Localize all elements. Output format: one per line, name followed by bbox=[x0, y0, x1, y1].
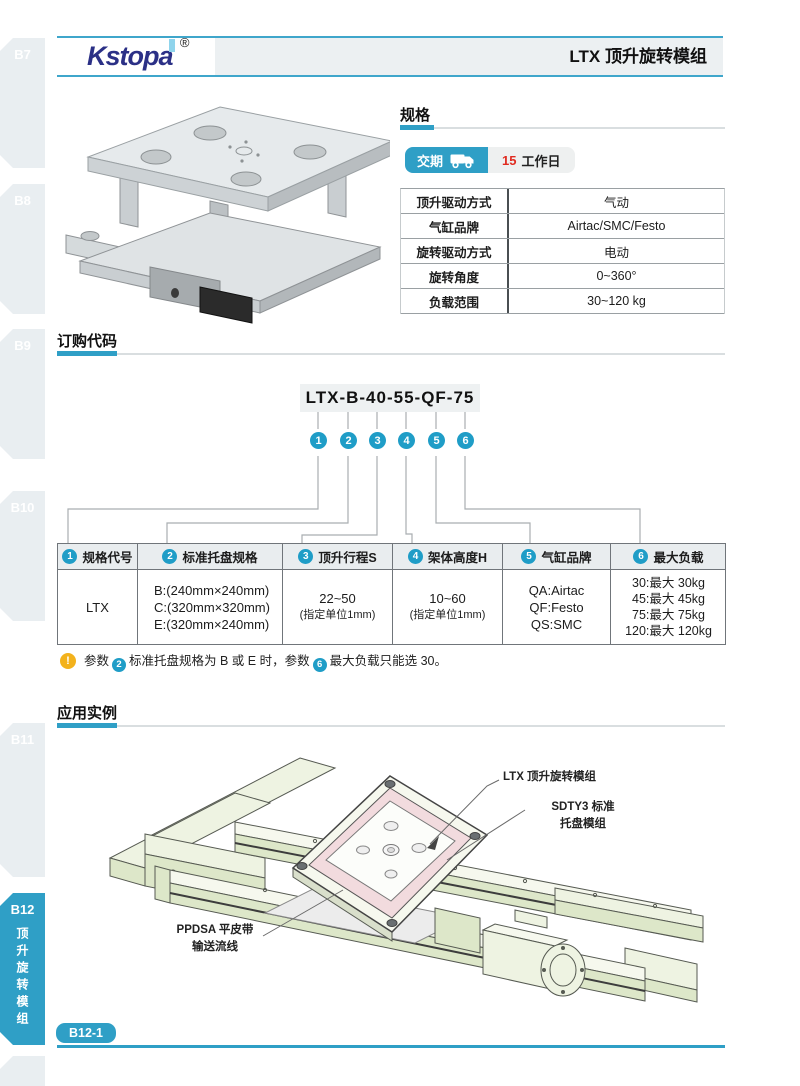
sidebar-tab-partial bbox=[0, 1056, 45, 1086]
cell-stroke: 22~50 (指定单位1mm) bbox=[283, 570, 393, 644]
spec-label: 旋转驱动方式 bbox=[401, 239, 509, 263]
col-label: 气缸品牌 bbox=[541, 547, 591, 566]
note-text: 参数2标准托盘规格为 B 或 E 时，参数6最大负载只能选 30。 bbox=[84, 650, 447, 672]
pallet-option: E:(320mm×240mm) bbox=[154, 616, 269, 633]
cell-pallet-options: B:(240mm×240mm) C:(320mm×320mm) E:(320mm… bbox=[138, 570, 283, 644]
load-option: 45:最大 45kg bbox=[632, 591, 705, 607]
sidebar-tab-label: B8 bbox=[14, 193, 31, 208]
cylinder-option: QF:Festo bbox=[529, 599, 583, 616]
header-bar: Kstopa ® LTX 顶升旋转模组 bbox=[57, 36, 723, 77]
spec-row: 顶升驱动方式 气动 bbox=[401, 189, 724, 214]
brand-logo-text: Kstopa bbox=[87, 41, 173, 71]
note-part1: 参数 bbox=[84, 654, 109, 668]
label-pallet-line1: SDTY3 标准 bbox=[528, 799, 638, 816]
truck-icon bbox=[450, 152, 476, 169]
spec-label: 负载范围 bbox=[401, 289, 509, 313]
ordering-table: 1规格代号 2标准托盘规格 3顶升行程S 4架体高度H 5气缸品牌 6最大负载 … bbox=[57, 543, 726, 645]
cell-cylinder-options: QA:Airtac QF:Festo QS:SMC bbox=[503, 570, 611, 644]
col-num-circle: 1 bbox=[62, 549, 77, 564]
ordering-col-header: 3顶升行程S bbox=[283, 544, 393, 569]
delivery-label: 交期 bbox=[417, 151, 443, 170]
delivery-badge: 交期 15 工作日 bbox=[405, 147, 575, 173]
pallet-option: C:(320mm×320mm) bbox=[154, 599, 270, 616]
sidebar-tab-b8[interactable]: B8 bbox=[0, 184, 45, 314]
note-part3: 最大负载只能选 30。 bbox=[330, 654, 447, 668]
spec-value: 30~120 kg bbox=[509, 289, 724, 313]
ordering-section-title: 订购代码 bbox=[57, 330, 117, 351]
stroke-unit-note: (指定单位1mm) bbox=[300, 607, 376, 624]
cell-frame-height: 10~60 (指定单位1mm) bbox=[393, 570, 503, 644]
ordering-table-header: 1规格代号 2标准托盘规格 3顶升行程S 4架体高度H 5气缸品牌 6最大负载 bbox=[58, 544, 725, 570]
label-pallet-module: SDTY3 标准 托盘模组 bbox=[528, 799, 638, 833]
sidebar-tab-b12-active[interactable]: B12 顶升旋转模组 bbox=[0, 893, 45, 1045]
col-label: 顶升行程S bbox=[318, 547, 376, 566]
col-label: 标准托盘规格 bbox=[182, 547, 257, 566]
callout-5: 5 bbox=[428, 432, 445, 449]
warning-icon: ! bbox=[60, 653, 76, 669]
page-number-badge[interactable]: B12-1 bbox=[56, 1023, 116, 1043]
specs-section-rule-accent bbox=[400, 125, 434, 130]
application-section-rule bbox=[57, 725, 725, 727]
specs-section-title: 规格 bbox=[400, 104, 430, 125]
spec-value: Airtac/SMC/Festo bbox=[509, 214, 724, 238]
spec-value: 气动 bbox=[509, 189, 724, 213]
sidebar-tab-label: B10 bbox=[11, 500, 35, 515]
height-range: 10~60 bbox=[429, 590, 466, 607]
height-unit-note: (指定单位1mm) bbox=[410, 607, 486, 624]
col-num-circle: 2 bbox=[162, 549, 177, 564]
ordering-note: ! 参数2标准托盘规格为 B 或 E 时，参数6最大负载只能选 30。 bbox=[60, 650, 447, 672]
spec-row: 旋转驱动方式 电动 bbox=[401, 239, 724, 264]
application-section-title: 应用实例 bbox=[57, 702, 117, 723]
ordering-section-rule bbox=[57, 353, 725, 355]
sidebar-tab-label: B7 bbox=[14, 47, 31, 62]
spec-table: 顶升驱动方式 气动 气缸品牌 Airtac/SMC/Festo 旋转驱动方式 电… bbox=[400, 188, 725, 314]
cylinder-option: QA:Airtac bbox=[529, 582, 585, 599]
sidebar-tab-b10[interactable]: B10 bbox=[0, 491, 45, 621]
ordering-col-header: 4架体高度H bbox=[393, 544, 503, 569]
label-belt-line2: 输送流线 bbox=[160, 939, 270, 956]
sidebar-tab-vertical-label: 顶升旋转模组 bbox=[14, 927, 31, 1029]
col-num-circle: 6 bbox=[633, 549, 648, 564]
spec-label: 顶升驱动方式 bbox=[401, 189, 509, 213]
ordering-table-row: LTX B:(240mm×240mm) C:(320mm×320mm) E:(3… bbox=[58, 570, 725, 644]
col-num-circle: 4 bbox=[408, 549, 423, 564]
spec-label: 旋转角度 bbox=[401, 264, 509, 288]
ordering-col-header: 5气缸品牌 bbox=[503, 544, 611, 569]
brand-logo: Kstopa ® bbox=[87, 41, 173, 72]
pallet-option: B:(240mm×240mm) bbox=[154, 582, 269, 599]
callout-6: 6 bbox=[457, 432, 474, 449]
cylinder-option: QS:SMC bbox=[531, 616, 582, 633]
stroke-range: 22~50 bbox=[319, 590, 356, 607]
col-num-circle: 5 bbox=[521, 549, 536, 564]
load-option: 120:最大 120kg bbox=[625, 623, 712, 639]
sidebar-tab-b7[interactable]: B7 bbox=[0, 38, 45, 168]
col-label: 架体高度H bbox=[428, 547, 487, 566]
col-num-circle: 3 bbox=[298, 549, 313, 564]
application-section-rule-accent bbox=[57, 723, 117, 728]
footer-rule bbox=[57, 1045, 725, 1048]
cell-load-options: 30:最大 30kg 45:最大 45kg 75:最大 75kg 120:最大 … bbox=[611, 570, 726, 644]
page-title: LTX 顶升旋转模组 bbox=[569, 38, 707, 75]
note-circle-2: 2 bbox=[112, 658, 126, 672]
load-option: 30:最大 30kg bbox=[632, 575, 705, 591]
col-label: 规格代号 bbox=[82, 547, 132, 566]
callout-2: 2 bbox=[340, 432, 357, 449]
spec-value: 0~360° bbox=[509, 264, 724, 288]
delivery-days: 15 bbox=[502, 153, 516, 168]
order-code-connector-lines bbox=[57, 412, 725, 543]
spec-value: 电动 bbox=[509, 239, 724, 263]
sidebar-tab-label: B11 bbox=[11, 732, 34, 747]
label-belt-line: PPDSA 平皮带 输送流线 bbox=[160, 922, 270, 956]
spec-row: 负载范围 30~120 kg bbox=[401, 289, 724, 314]
note-circle-6: 6 bbox=[313, 658, 327, 672]
catalog-page: B7 B8 B9 B10 B11 B12 顶升旋转模组 Kstopa ® LTX… bbox=[0, 0, 800, 1086]
cell-spec-code: LTX bbox=[58, 570, 138, 644]
spec-row: 气缸品牌 Airtac/SMC/Festo bbox=[401, 214, 724, 239]
sidebar-tab-b11[interactable]: B11 bbox=[0, 723, 45, 877]
ordering-col-header: 6最大负载 bbox=[611, 544, 726, 569]
spec-label: 气缸品牌 bbox=[401, 214, 509, 238]
application-drawing bbox=[85, 738, 705, 1020]
col-label: 最大负载 bbox=[653, 547, 703, 566]
callout-3: 3 bbox=[369, 432, 386, 449]
spec-row: 旋转角度 0~360° bbox=[401, 264, 724, 289]
registered-trademark-icon: ® bbox=[180, 35, 189, 50]
ordering-col-header: 2标准托盘规格 bbox=[138, 544, 283, 569]
sidebar-tab-label: B12 bbox=[11, 902, 35, 917]
specs-section-rule bbox=[400, 127, 725, 129]
note-part2: 标准托盘规格为 B 或 E 时，参数 bbox=[129, 654, 310, 668]
sidebar-tab-label: B9 bbox=[14, 338, 31, 353]
sidebar-tab-b9[interactable]: B9 bbox=[0, 329, 45, 459]
delivery-unit: 工作日 bbox=[521, 151, 560, 170]
logo-accent-mark bbox=[169, 39, 175, 52]
delivery-badge-left: 交期 bbox=[405, 147, 488, 173]
load-option: 75:最大 75kg bbox=[632, 607, 705, 623]
ordering-section-rule-accent bbox=[57, 351, 117, 356]
label-ltx-module: LTX 顶升旋转模组 bbox=[503, 769, 596, 786]
delivery-badge-right: 15 工作日 bbox=[488, 147, 574, 173]
label-belt-line1: PPDSA 平皮带 bbox=[160, 922, 270, 939]
callout-1: 1 bbox=[310, 432, 327, 449]
label-pallet-line2: 托盘模组 bbox=[528, 816, 638, 833]
callout-4: 4 bbox=[398, 432, 415, 449]
order-code: LTX-B-40-55-QF-75 bbox=[300, 384, 480, 412]
ordering-col-header: 1规格代号 bbox=[58, 544, 138, 569]
logo-zone: Kstopa ® bbox=[57, 38, 215, 75]
product-3d-figure bbox=[60, 95, 390, 325]
